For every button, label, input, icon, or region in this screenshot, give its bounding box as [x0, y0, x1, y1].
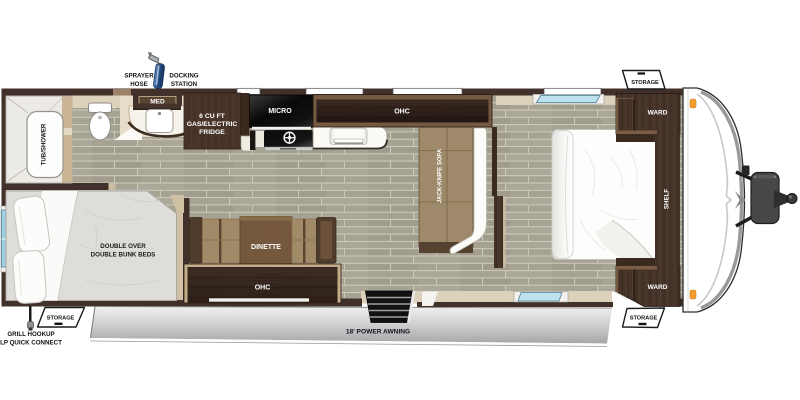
svg-text:WARD: WARD	[648, 284, 668, 291]
svg-text:18' POWER AWNING: 18' POWER AWNING	[346, 329, 410, 336]
svg-text:TUB/SHOWER: TUB/SHOWER	[41, 123, 48, 165]
svg-text:STORAGE: STORAGE	[631, 80, 659, 86]
svg-text:STATION: STATION	[171, 81, 198, 88]
svg-text:OHC: OHC	[255, 285, 271, 292]
svg-text:DINETTE: DINETTE	[251, 244, 281, 251]
svg-text:DOCKING: DOCKING	[169, 73, 198, 80]
svg-text:STORAGE: STORAGE	[47, 316, 75, 322]
svg-text:JACK-KNIFE SOFA: JACK-KNIFE SOFA	[438, 148, 444, 203]
svg-text:WARD: WARD	[648, 110, 668, 117]
svg-text:DOUBLE OVER: DOUBLE OVER	[100, 243, 146, 250]
svg-text:GAS/ELECTRIC: GAS/ELECTRIC	[187, 121, 238, 128]
svg-text:MICRO: MICRO	[268, 108, 292, 115]
svg-text:GRILL HOOKUP: GRILL HOOKUP	[7, 331, 54, 338]
svg-text:DOUBLE BUNK BEDS: DOUBLE BUNK BEDS	[91, 252, 156, 259]
svg-text:OHC: OHC	[394, 109, 410, 116]
svg-text:SHELF: SHELF	[664, 189, 671, 210]
svg-text:6 CU FT: 6 CU FT	[199, 113, 226, 120]
svg-text:SPRAYER: SPRAYER	[124, 73, 154, 80]
svg-text:LP QUICK CONNECT: LP QUICK CONNECT	[0, 340, 62, 347]
svg-text:FRIDGE: FRIDGE	[199, 129, 225, 136]
svg-text:STORAGE: STORAGE	[630, 316, 658, 322]
svg-text:HOSE: HOSE	[130, 81, 148, 88]
